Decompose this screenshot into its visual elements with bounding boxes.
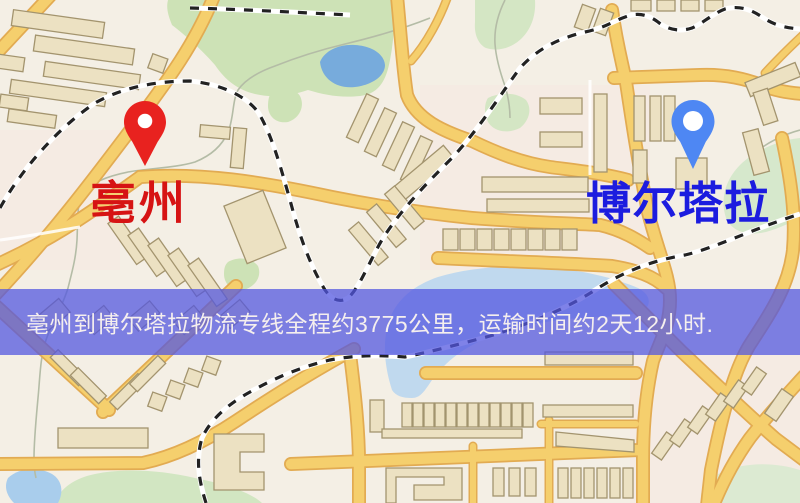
map-pin-icon <box>124 101 166 166</box>
route-map-image: 亳州 博尔塔拉 亳州到博尔塔拉物流专线全程约3775公里，运输时间约2天12小时… <box>0 0 800 503</box>
origin-pin-icon <box>123 100 167 167</box>
map-background <box>0 0 800 503</box>
route-info-text: 亳州到博尔塔拉物流专线全程约3775公里，运输时间约2天12小时. <box>0 305 713 339</box>
route-info-banner: 亳州到博尔塔拉物流专线全程约3775公里，运输时间约2天12小时. <box>0 289 800 355</box>
pin-hole <box>138 114 153 129</box>
destination-city-label: 博尔塔拉 <box>586 181 770 226</box>
map-pin-icon <box>672 100 715 169</box>
pin-hole <box>683 111 703 131</box>
destination-pin-icon <box>670 99 716 170</box>
origin-city-label: 亳州 <box>90 180 188 226</box>
